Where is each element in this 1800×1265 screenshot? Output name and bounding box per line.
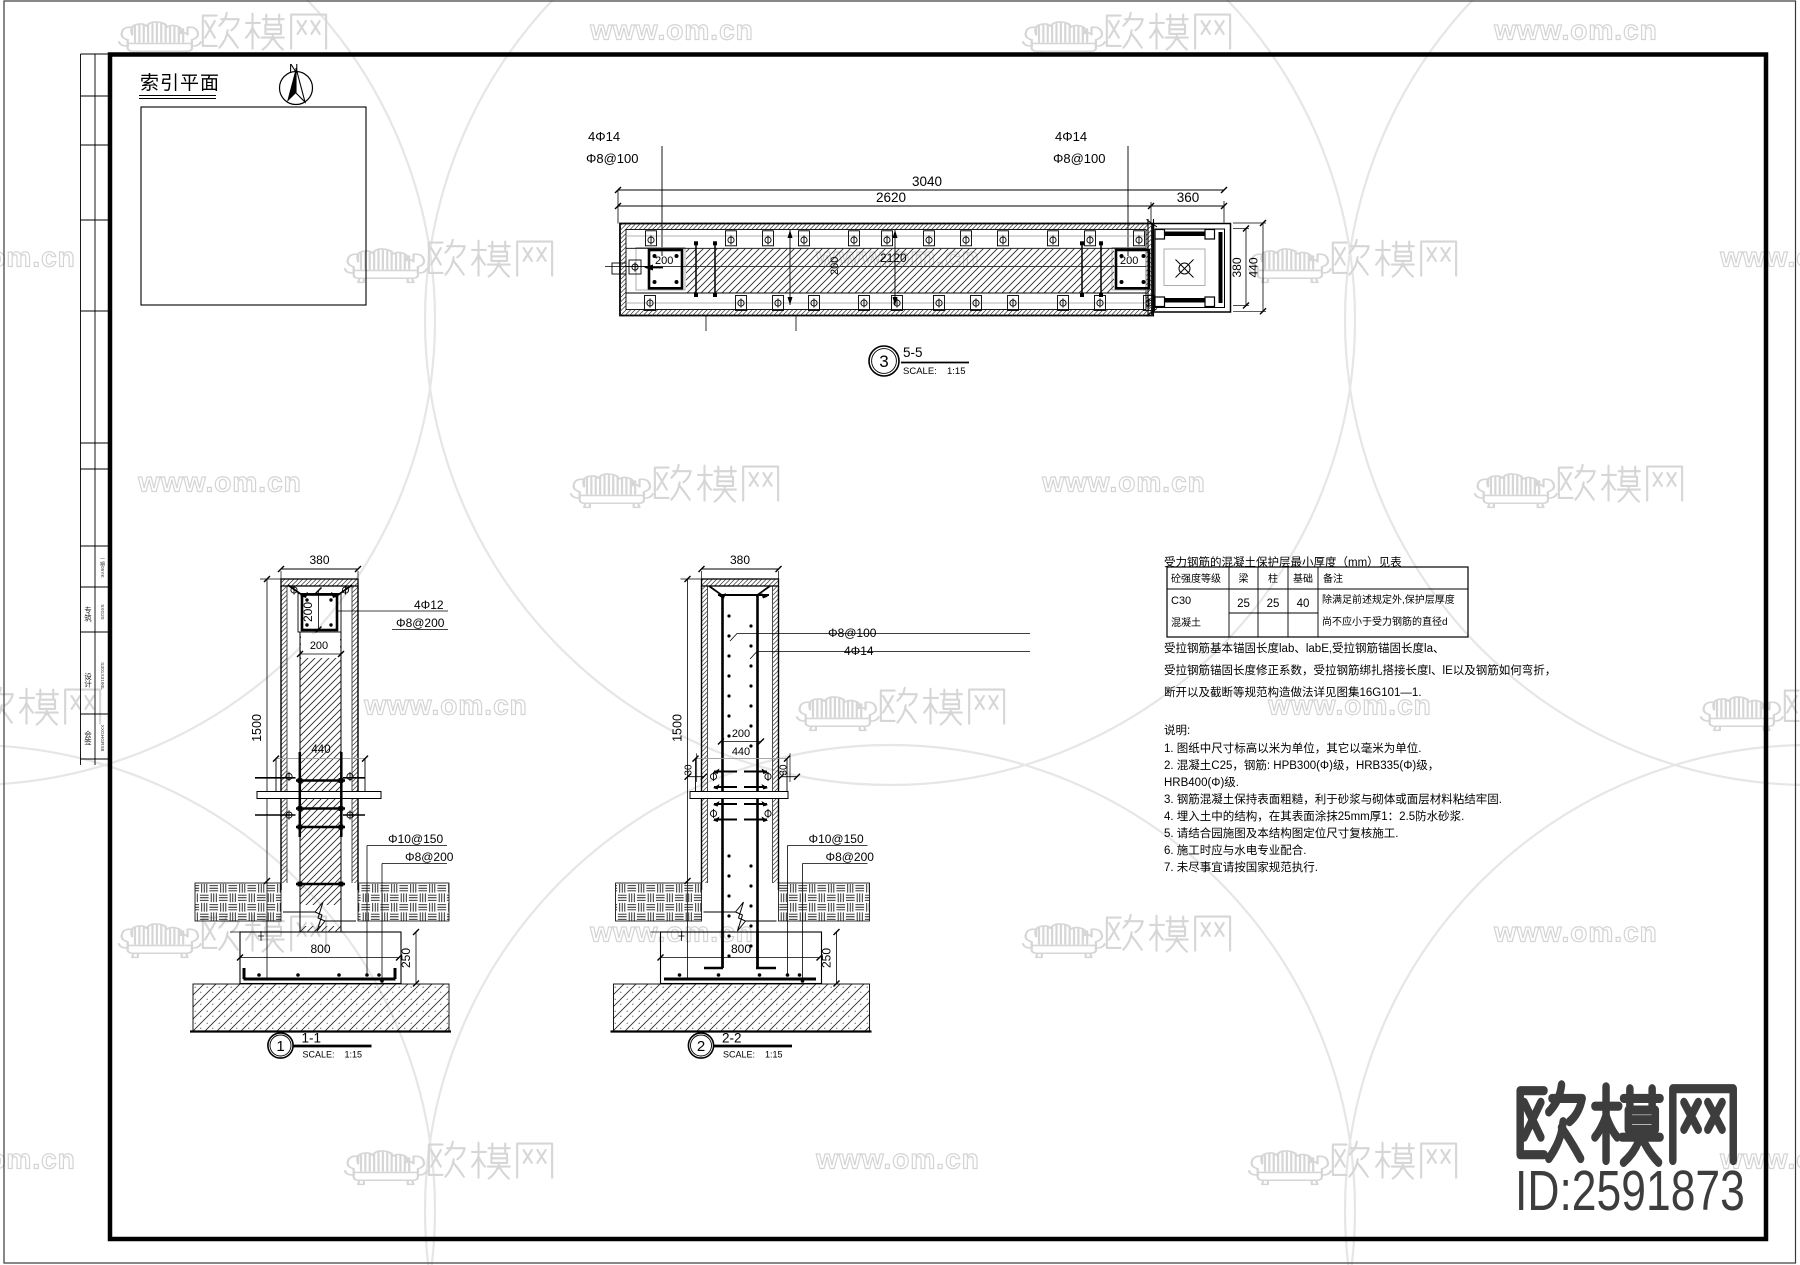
svg-text:800: 800 [731, 942, 751, 956]
svg-text:1:15: 1:15 [765, 1050, 783, 1060]
svg-text:除满足前述规定外,保护层厚度: 除满足前述规定外,保护层厚度 [1322, 593, 1455, 606]
svg-text:www.om.cn: www.om.cn [363, 690, 528, 721]
svg-text:尚不应小于受力钢筋的直径d: 尚不应小于受力钢筋的直径d [1322, 615, 1448, 628]
svg-text:1: 1 [276, 1038, 284, 1055]
svg-text:4Φ12: 4Φ12 [414, 598, 444, 612]
svg-text:Φ8@200: Φ8@200 [396, 616, 445, 630]
svg-text:200: 200 [829, 257, 841, 275]
svg-text:1-1: 1-1 [302, 1031, 322, 1046]
svg-text:200: 200 [310, 640, 328, 652]
svg-text:SCALE:: SCALE: [303, 1050, 335, 1060]
svg-text:备注: 备注 [1323, 572, 1343, 585]
svg-text:www.om.cn: www.om.cn [815, 1144, 980, 1175]
svg-text:1:15: 1:15 [345, 1050, 363, 1060]
svg-text:索引平面: 索引平面 [140, 72, 220, 94]
svg-text:250: 250 [399, 948, 413, 968]
svg-text:Φ8@100: Φ8@100 [828, 626, 877, 640]
svg-text:SCALE:: SCALE: [723, 1050, 755, 1060]
svg-text:5-5: 5-5 [903, 345, 923, 360]
svg-text:200: 200 [655, 255, 673, 267]
svg-text:2120: 2120 [880, 251, 907, 265]
svg-text:4Φ14: 4Φ14 [844, 644, 874, 658]
svg-text:SCALE:: SCALE: [903, 366, 937, 377]
svg-text:3: 3 [879, 352, 888, 371]
svg-text:200: 200 [1120, 255, 1138, 267]
svg-text:440: 440 [732, 746, 750, 758]
svg-text:800: 800 [310, 942, 330, 956]
svg-text:6. 施工时应与水电专业配合.: 6. 施工时应与水电专业配合. [1164, 843, 1306, 857]
svg-text:梁: 梁 [1239, 572, 1249, 585]
svg-text:www.om.cn: www.om.cn [0, 1144, 76, 1175]
svg-text:Φ8@100: Φ8@100 [1053, 151, 1106, 166]
svg-text:200: 200 [301, 602, 315, 622]
svg-text:www.om.cn: www.om.cn [589, 15, 754, 46]
svg-text:ID:2591873: ID:2591873 [1515, 1159, 1745, 1223]
svg-text:30: 30 [684, 764, 695, 776]
svg-text:1. 图纸中尺寸标高以米为单位，其它以毫米为单位.: 1. 图纸中尺寸标高以米为单位，其它以毫米为单位. [1164, 741, 1421, 755]
svg-text:440: 440 [1247, 257, 1261, 277]
svg-text:www.om.cn: www.om.cn [1493, 15, 1658, 46]
svg-text:受拉钢筋锚固长度修正系数，受拉钢筋绑扎搭接长度l、lE以及钢: 受拉钢筋锚固长度修正系数，受拉钢筋绑扎搭接长度l、lE以及钢筋如何弯折， [1164, 663, 1556, 677]
svg-text:专筑: 专筑 [83, 605, 92, 623]
svg-text:4Φ14: 4Φ14 [1055, 129, 1087, 144]
svg-text:25: 25 [1237, 598, 1250, 610]
svg-text:www.om.cn: www.om.cn [0, 242, 76, 273]
svg-text:7. 未尽事宜请按国家规范执行.: 7. 未尽事宜请按国家规范执行. [1164, 860, 1318, 874]
svg-text:断开以及截断等规范构造做法详见图集16G101—1.: 断开以及截断等规范构造做法详见图集16G101—1. [1164, 685, 1422, 699]
svg-text:基础: 基础 [1293, 572, 1313, 585]
svg-text:设计: 设计 [83, 671, 92, 689]
svg-text:Φ8@200: Φ8@200 [826, 850, 875, 864]
svg-text:5. 请结合园施图及本结构图定位尺寸复核施工.: 5. 请结合园施图及本结构图定位尺寸复核施工. [1164, 826, 1398, 840]
svg-text:www.om.cn: www.om.cn [1041, 467, 1206, 498]
svg-text:Φ8@200: Φ8@200 [405, 850, 454, 864]
svg-text:25: 25 [1267, 598, 1280, 610]
svg-text:会签: 会签 [83, 729, 92, 746]
svg-text:4. 埋入土中的结构，在其表面涂抹25mm厚1：2.5防水: 4. 埋入土中的结构，在其表面涂抹25mm厚1：2.5防水砂浆. [1164, 809, 1464, 823]
svg-text:360: 360 [1177, 190, 1200, 205]
svg-text:2-2: 2-2 [722, 1031, 742, 1046]
svg-text:Φ10@150: Φ10@150 [388, 832, 443, 846]
svg-text:HRB400(Φ)级.: HRB400(Φ)级. [1164, 776, 1239, 789]
svg-text:380: 380 [1230, 257, 1244, 277]
svg-text:Φ8@100: Φ8@100 [586, 151, 639, 166]
svg-text:200: 200 [732, 728, 750, 740]
svg-text:2620: 2620 [876, 190, 906, 205]
svg-text:380: 380 [730, 553, 750, 567]
svg-text:说明:: 说明: [1164, 723, 1190, 737]
svg-text:混凝土: 混凝土 [1171, 616, 1201, 629]
svg-text:2: 2 [697, 1038, 705, 1055]
svg-text:受拉钢筋基本锚固长度lab、labE,受拉钢筋锚固长度la、: 受拉钢筋基本锚固长度lab、labE,受拉钢筋锚固长度la、 [1164, 641, 1445, 655]
svg-text:砼强度等级: 砼强度等级 [1171, 572, 1221, 585]
svg-text:柱: 柱 [1268, 572, 1278, 585]
svg-text:380: 380 [309, 553, 329, 567]
svg-text:www.om.cn: www.om.cn [1719, 242, 1800, 273]
svg-text:40: 40 [1297, 598, 1310, 610]
svg-text:www.om.cn: www.om.cn [137, 467, 302, 498]
svg-text:1500: 1500 [671, 714, 685, 742]
svg-text:440: 440 [311, 744, 330, 756]
svg-text:www.om.cn: www.om.cn [1493, 917, 1658, 948]
svg-text:1:15: 1:15 [947, 366, 966, 377]
svg-text:250: 250 [820, 948, 834, 968]
svg-text:4Φ14: 4Φ14 [588, 129, 620, 144]
svg-text:3. 钢筋混凝土保持表面粗糙，利于砂浆与砌体或面层材料粘结: 3. 钢筋混凝土保持表面粗糙，利于砂浆与砌体或面层材料粘结牢固. [1164, 792, 1502, 806]
svg-text:Φ10@150: Φ10@150 [809, 832, 864, 846]
svg-text:1500: 1500 [250, 714, 264, 742]
svg-text:2. 混凝土C25，钢筋: HPB300(Φ)级，HRB3: 2. 混凝土C25，钢筋: HPB300(Φ)级，HRB335(Φ)级， [1164, 758, 1439, 772]
svg-text:C30: C30 [1171, 595, 1191, 607]
svg-text:3040: 3040 [912, 174, 942, 189]
